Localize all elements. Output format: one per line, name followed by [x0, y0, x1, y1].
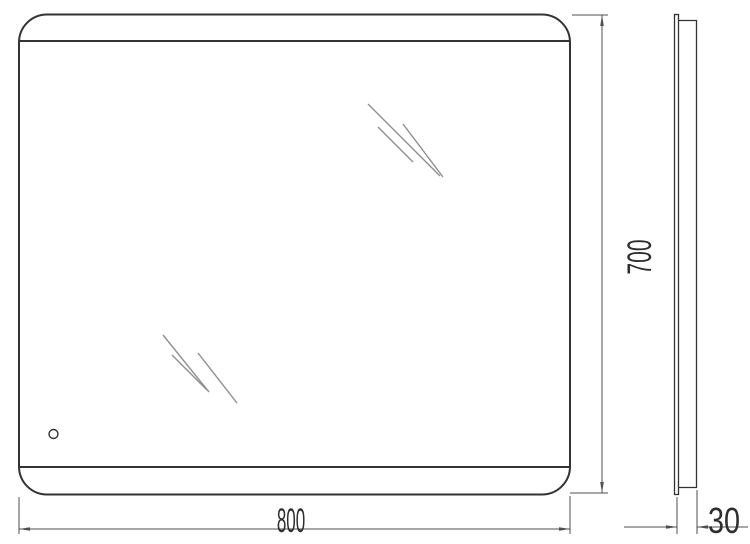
- glass-shine-bottom-left-icon: [163, 335, 237, 403]
- technical-drawing-canvas: 800 700 30: [0, 0, 750, 544]
- depth-dimension-label: 30: [700, 503, 748, 539]
- dimension-height: [570, 15, 608, 493]
- mirror-side-backpanel-profile: [679, 21, 697, 488]
- arrow-up-icon: [600, 15, 604, 26]
- arrow-down-icon: [600, 482, 604, 493]
- height-dimension-label: 700: [623, 226, 657, 288]
- glass-shine-top-right-icon: [368, 104, 443, 177]
- arrow-left-icon: [19, 527, 30, 531]
- mirror-front-outline: [19, 15, 570, 495]
- arrow-right-icon: [559, 527, 570, 531]
- touch-sensor-icon: [49, 430, 58, 439]
- width-dimension-label: 800: [251, 504, 331, 538]
- side-view: [675, 15, 697, 495]
- arrow-right-icon: [666, 525, 677, 529]
- front-view: [19, 15, 570, 495]
- mirror-side-glass-profile: [675, 15, 679, 495]
